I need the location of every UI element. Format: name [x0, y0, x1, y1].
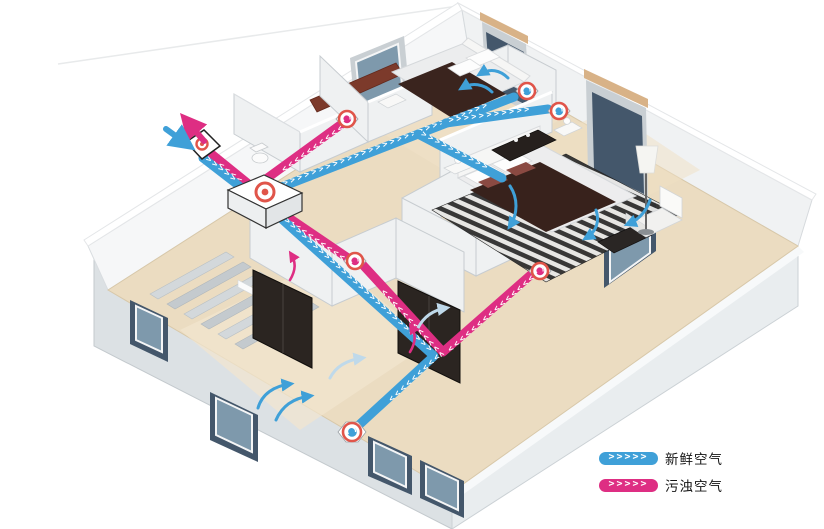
legend-exhaust-air-label: 污浊空气 — [665, 475, 723, 495]
exhaust-air-arrow-icon: >>>>> — [599, 479, 658, 492]
table-lamp — [564, 118, 571, 125]
fresh-in-arrow — [166, 129, 188, 145]
legend: >>>>> 新鲜空气 >>>>> 污浊空气 — [599, 451, 819, 505]
fresh-air-arrow-icon: >>>>> — [599, 452, 658, 465]
ventilation-diagram: >>>>>>>>>>>>>>>>>>>>>>>>>>> >>>>>>>>>>> … — [0, 0, 824, 529]
legend-fresh-air: >>>>> 新鲜空气 — [599, 451, 819, 465]
legend-exhaust-air: >>>>> 污浊空气 — [599, 478, 819, 492]
legend-fresh-air-label: 新鲜空气 — [665, 448, 723, 468]
lamp-shade — [636, 146, 658, 173]
lamp-base — [638, 229, 654, 235]
